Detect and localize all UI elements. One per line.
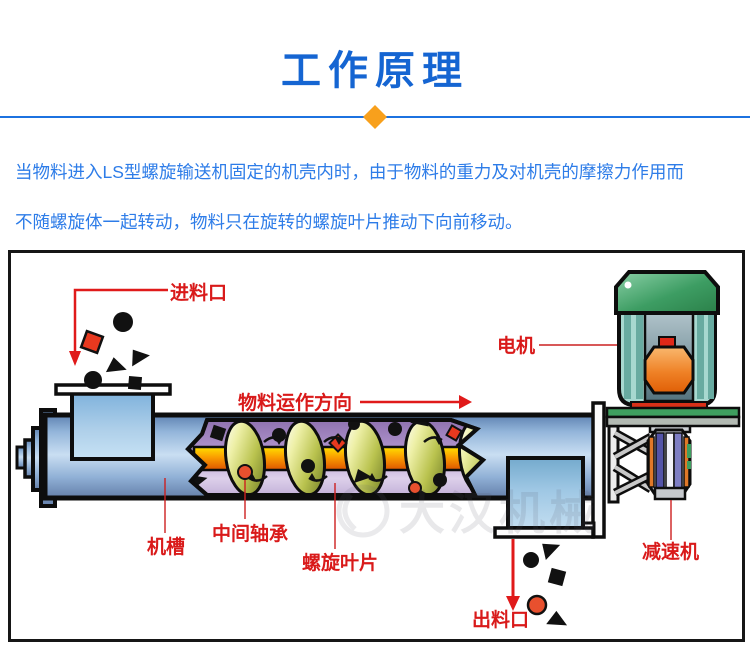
motor bbox=[607, 272, 739, 426]
page: { "header": { "title": "工作原理", "accent_c… bbox=[0, 0, 750, 666]
reducer bbox=[648, 423, 691, 499]
label-spiral-blade: 螺旋叶片 bbox=[302, 551, 378, 574]
label-reducer: 减速机 bbox=[642, 540, 699, 563]
motor-cap bbox=[616, 272, 718, 313]
title-divider bbox=[0, 116, 750, 118]
cutaway-section bbox=[188, 411, 503, 498]
watermark: 大汉机械 bbox=[339, 487, 599, 539]
label-trough: 机槽 bbox=[147, 535, 185, 558]
divider-diamond-icon bbox=[363, 105, 387, 129]
inlet-hopper bbox=[56, 385, 170, 459]
watermark-text: 大汉机械 bbox=[399, 487, 599, 539]
label-direction: 物料运作方向 bbox=[238, 391, 352, 414]
intro-text: 当物料进入LS型螺旋输送机固定的机壳内时，由于物料的重力及对机壳的摩擦力作用而 … bbox=[15, 147, 737, 247]
intro-line-2: 不随螺旋体一起转动，物料只在旋转的螺旋叶片推动下向前移动。 bbox=[15, 197, 737, 247]
label-inlet: 进料口 bbox=[170, 281, 227, 304]
inlet-material-particles bbox=[81, 312, 151, 390]
motor-base-plate bbox=[607, 408, 739, 417]
conveyor-illustration: 进料口 物料运作方向 电机 机槽 中间轴承 螺旋叶片 减速机 出料口 大汉机械 bbox=[11, 253, 742, 639]
intro-line-1: 当物料进入LS型螺旋输送机固定的机壳内时，由于物料的重力及对机壳的摩擦力作用而 bbox=[15, 147, 737, 197]
label-middle-bearing: 中间轴承 bbox=[212, 522, 288, 545]
working-principle-diagram: 进料口 物料运作方向 电机 机槽 中间轴承 螺旋叶片 减速机 出料口 大汉机械 bbox=[8, 250, 745, 642]
label-outlet: 出料口 bbox=[472, 608, 529, 631]
outlet-material-particles bbox=[523, 536, 570, 631]
motor-fan-octagon bbox=[645, 347, 693, 393]
middle-bearing-dot bbox=[238, 465, 252, 479]
label-motor: 电机 bbox=[497, 334, 535, 357]
page-title: 工作原理 bbox=[0, 38, 750, 96]
